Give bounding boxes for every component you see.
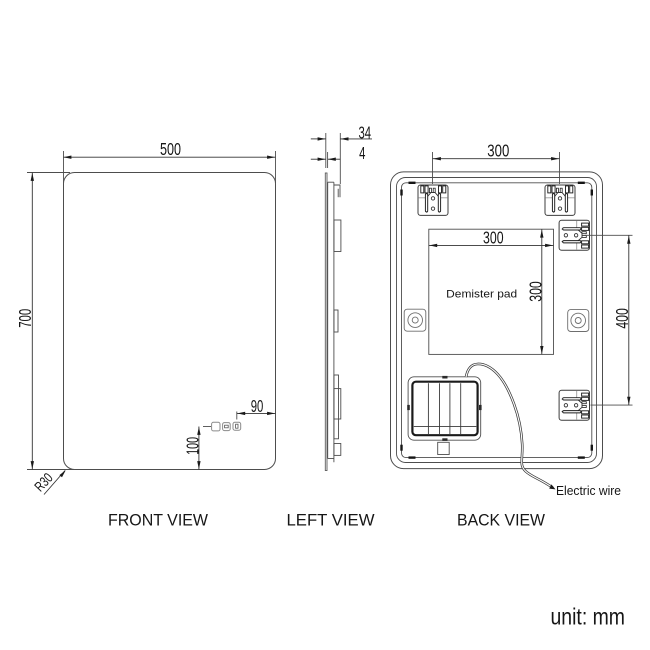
svg-text:FRONT VIEW: FRONT VIEW (108, 511, 208, 529)
svg-text:4: 4 (359, 143, 365, 163)
svg-text:500: 500 (160, 139, 181, 159)
svg-text:BACK VIEW: BACK VIEW (457, 511, 545, 529)
svg-text:unit: mm: unit: mm (551, 604, 626, 630)
svg-text:34: 34 (359, 123, 372, 143)
svg-text:300: 300 (487, 141, 509, 161)
svg-text:Demister pad: Demister pad (446, 289, 517, 301)
svg-text:LEFT VIEW: LEFT VIEW (287, 511, 375, 529)
svg-text:90: 90 (251, 396, 264, 416)
svg-text:300: 300 (526, 281, 546, 302)
svg-text:400: 400 (612, 308, 632, 329)
svg-text:300: 300 (483, 227, 504, 247)
svg-text:700: 700 (15, 309, 35, 328)
svg-text:100: 100 (182, 437, 202, 455)
svg-text:Electric wire: Electric wire (556, 484, 621, 498)
